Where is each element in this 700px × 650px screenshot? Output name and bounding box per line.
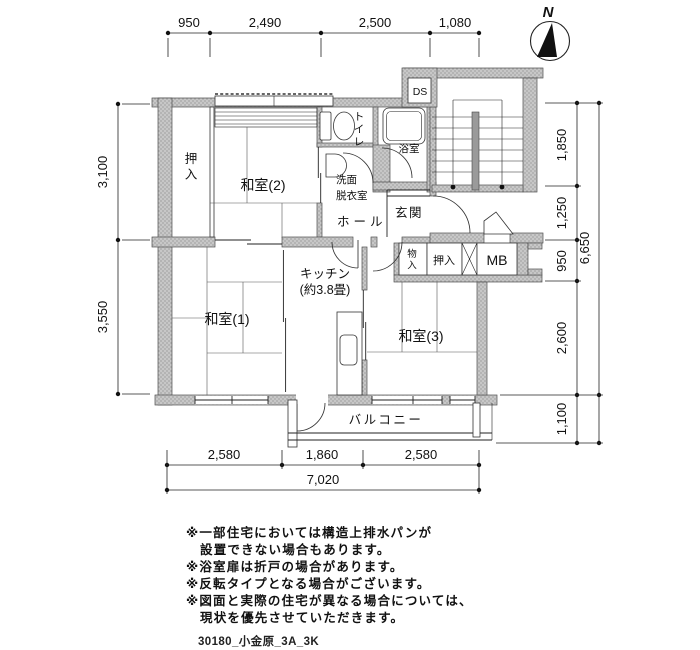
balcony-door	[297, 403, 325, 431]
balcony-label: バルコニー	[349, 413, 424, 427]
washroom-label-line2: 脱衣室	[336, 189, 368, 202]
duct-label: DS	[413, 86, 428, 98]
note-line-2: 設置できない場合もあります。	[200, 542, 391, 557]
washitsu3-label: 和室(3)	[398, 328, 443, 344]
dim-bottom-1: 2,580	[208, 447, 241, 462]
north-label: N	[543, 4, 555, 21]
note-line-4: ※反転タイプとなる場合がございます。	[186, 576, 431, 591]
washroom-label-line1: 洗面	[336, 174, 357, 186]
meter-box-label: MB	[487, 252, 508, 268]
dim-left-1: 3,100	[95, 156, 110, 189]
dim-top-2: 2,490	[249, 15, 282, 30]
notes: ※一部住宅においては構造上排水パンが 設置できない場合もあります。 ※浴室扉は折…	[186, 525, 473, 625]
toilet-fixture	[320, 112, 355, 140]
storage-label: 物入	[407, 248, 417, 272]
kitchen-counter-fixture	[337, 312, 362, 395]
balcony-partition	[473, 403, 480, 437]
dim-bottom-2: 1,860	[306, 447, 339, 462]
window-bottom-washitsu1	[195, 396, 268, 405]
bath-label: 浴室	[399, 142, 420, 155]
closet-right-label: 押入	[433, 253, 455, 267]
meter-box-door-flap	[484, 212, 513, 234]
dim-bottom-3: 2,580	[405, 447, 438, 462]
note-line-5: ※図面と実際の住宅が異なる場合については、	[186, 593, 473, 608]
kitchen-label-line1: キッチン	[300, 267, 350, 281]
dimension-bottom: 2,580 1,860 2,580 7,020	[165, 447, 481, 494]
dim-right-total: 6,650	[577, 232, 592, 265]
dim-right-5: 1,100	[554, 403, 569, 436]
balcony-door-opening	[296, 394, 328, 406]
dim-right-2: 1,250	[554, 197, 569, 230]
entrance-door-arc	[433, 196, 470, 233]
hall-label: ホール	[337, 215, 387, 229]
stair-divider	[472, 112, 479, 190]
note-line-6: 現状を優先させていただきます。	[200, 610, 404, 625]
closet-left-label: 押入	[185, 152, 198, 182]
dim-left-2: 3,550	[95, 301, 110, 334]
note-line-3: ※浴室扉は折戸の場合があります。	[186, 559, 404, 574]
dim-top-3: 2,500	[359, 15, 392, 30]
dimension-top: 950 2,490 2,500 1,080	[166, 15, 481, 57]
window-bottom-washitsu3	[372, 396, 442, 405]
dim-right-4: 2,600	[554, 322, 569, 355]
dim-top-1: 950	[178, 15, 200, 30]
washitsu1-label: 和室(1)	[204, 311, 249, 327]
kitchen-label-line2: (約3.8畳)	[300, 282, 351, 297]
floor-plan-page: 押入 和室(2) トイレ 浴室 DS 洗面 脱衣室 ホール 玄関 キッチン (約…	[0, 0, 700, 650]
window-bottom-right	[450, 396, 475, 405]
entrance-label: 玄関	[395, 205, 423, 220]
file-label: 30180_小金原_3A_3K	[198, 634, 319, 648]
pipe-shaft-box	[462, 243, 477, 275]
bathtub-fixture	[383, 108, 425, 144]
compass: N	[531, 4, 570, 61]
staircase	[432, 100, 523, 190]
window-top-washitsu2	[215, 94, 333, 127]
floor-plan-drawing: 押入 和室(2) トイレ 浴室 DS 洗面 脱衣室 ホール 玄関 キッチン (約…	[0, 0, 700, 650]
north-needle-icon	[537, 23, 557, 57]
dim-right-3: 950	[554, 250, 569, 272]
dim-right-1: 1,850	[554, 129, 569, 162]
washitsu2-label: 和室(2)	[240, 177, 285, 193]
toilet-label: トイレ	[354, 111, 365, 148]
dimension-left: 3,100 3,550	[95, 102, 150, 396]
note-line-1: ※一部住宅においては構造上排水パンが	[186, 525, 432, 540]
dim-top-4: 1,080	[439, 15, 472, 30]
dim-bottom-total: 7,020	[307, 472, 340, 487]
closet-left-front	[210, 107, 214, 237]
